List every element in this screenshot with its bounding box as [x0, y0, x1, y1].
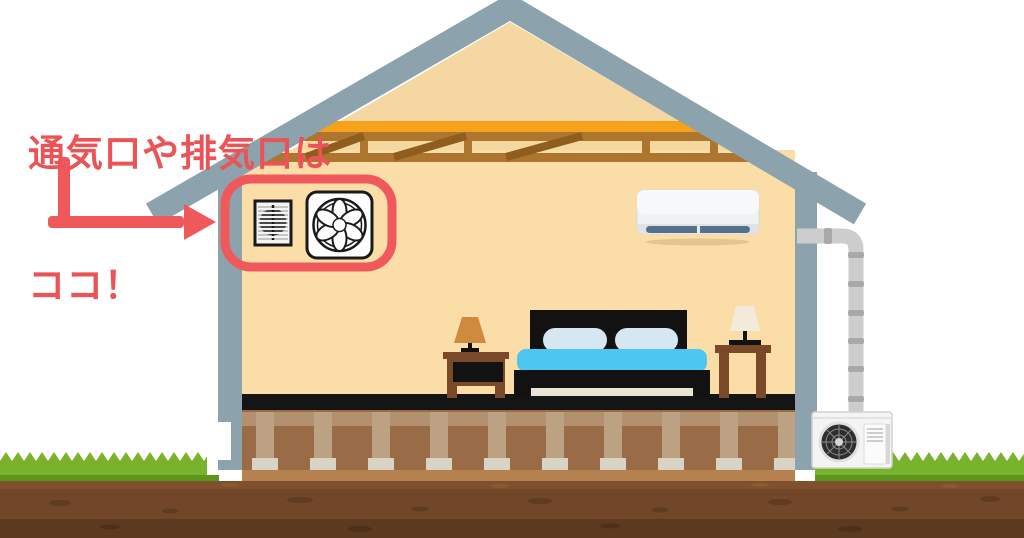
- bed-base: [514, 370, 710, 389]
- foundation-vent-opening: [218, 422, 231, 460]
- attic-beam-orange: [304, 121, 716, 132]
- bed-rail: [531, 388, 693, 396]
- bed: [514, 310, 710, 397]
- soil: [0, 481, 1024, 538]
- drawer: [453, 362, 503, 382]
- bed-leg-right: [693, 388, 710, 397]
- house-ventilation-diagram: 通気口や排気口は ココ！: [0, 0, 1024, 538]
- crawl-floor: [242, 470, 795, 481]
- exterior-right: [817, 100, 1024, 456]
- crawl-space: [242, 410, 795, 481]
- pillow-left: [543, 328, 607, 352]
- outdoor-ac-unit: [812, 412, 892, 468]
- annotation-line-2: ココ！: [28, 264, 332, 308]
- annotation-line-1: 通気口や排気口は: [28, 132, 332, 176]
- annotation-text: 通気口や排気口は ココ！: [28, 44, 332, 396]
- bed-leg-left: [514, 388, 531, 397]
- blanket: [517, 349, 707, 372]
- outdoor-side-panel: [864, 424, 886, 464]
- grass-left: [0, 452, 219, 481]
- pillow-right: [615, 328, 678, 352]
